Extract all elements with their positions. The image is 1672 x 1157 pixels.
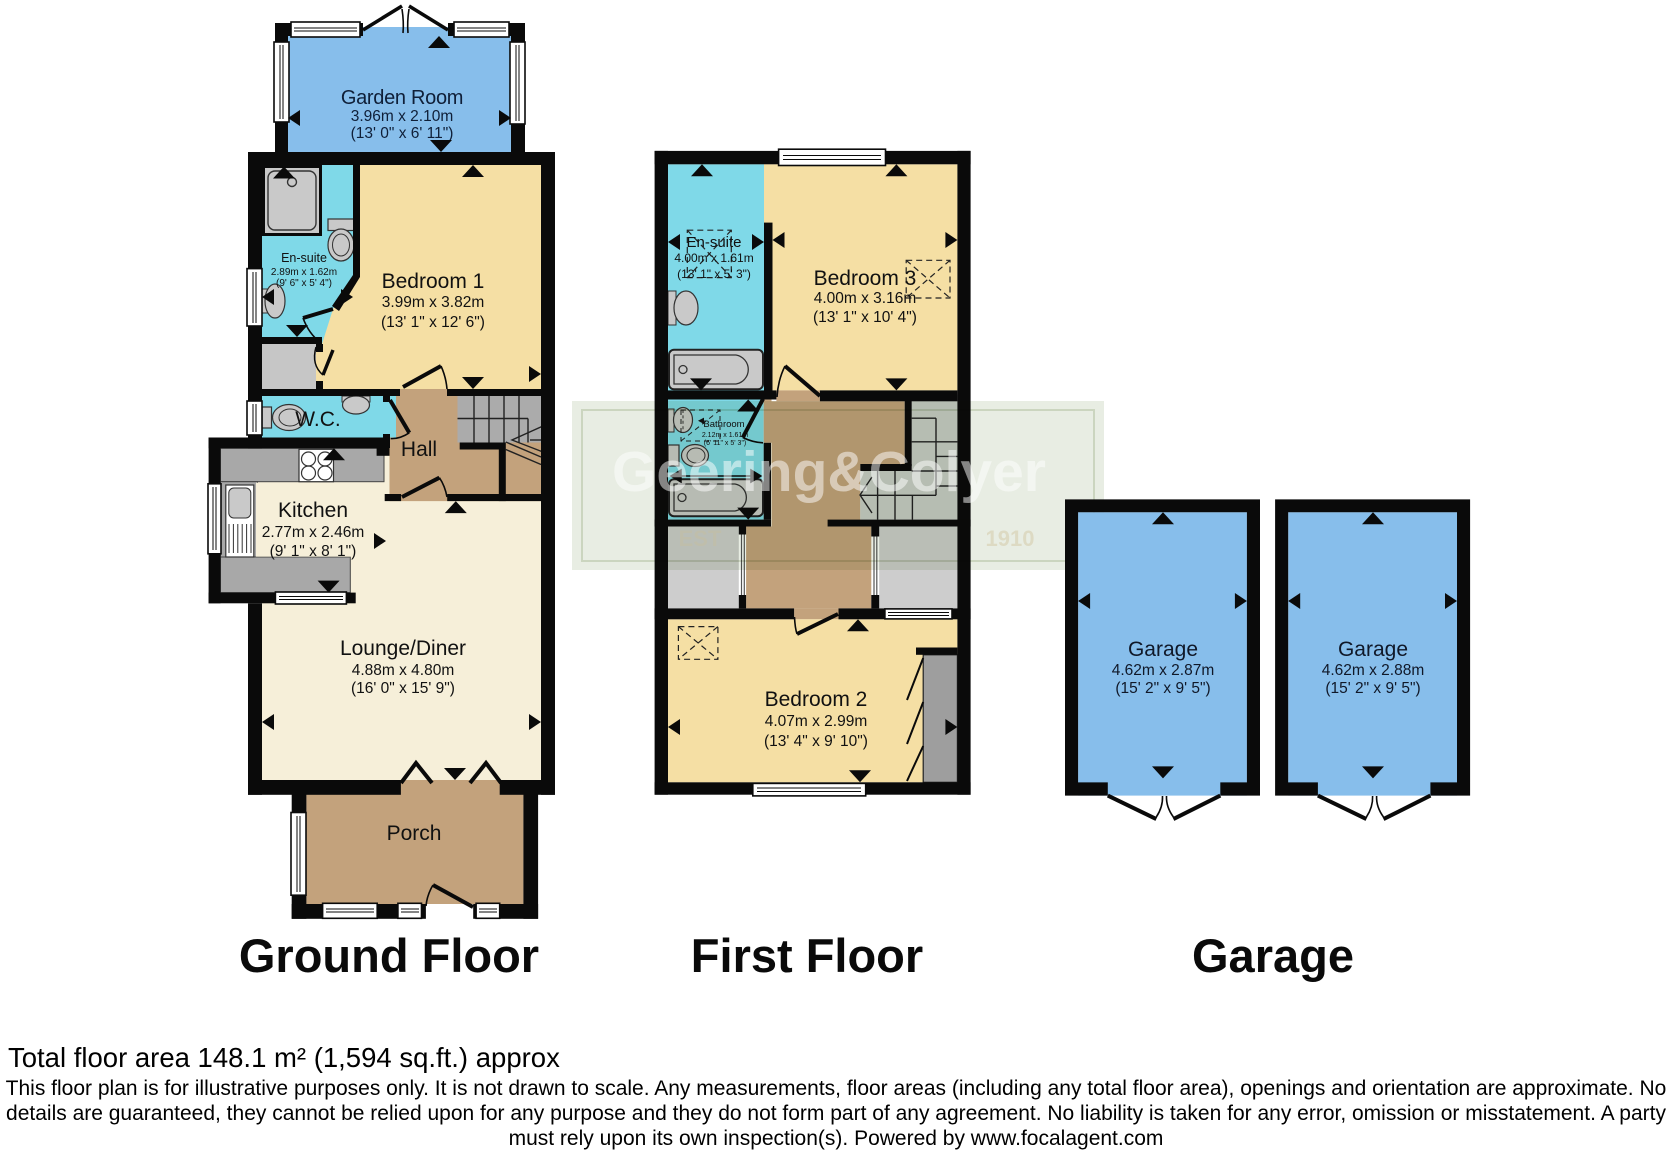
svg-text:(13' 0" x 6' 11"): (13' 0" x 6' 11")	[351, 125, 454, 142]
svg-text:4.00m x 3.16m: 4.00m x 3.16m	[814, 290, 917, 307]
svg-text:must rely upon its own inspect: must rely upon its own inspection(s). Po…	[509, 1127, 1164, 1150]
svg-text:En-suite: En-suite	[281, 251, 327, 265]
svg-text:4.07m x 2.99m: 4.07m x 2.99m	[765, 713, 868, 730]
svg-text:Bedroom 2: Bedroom 2	[765, 688, 868, 711]
svg-text:(9' 1" x 8' 1"): (9' 1" x 8' 1")	[270, 543, 357, 560]
svg-text:Total floor area 148.1 m² (1,5: Total floor area 148.1 m² (1,594 sq.ft.)…	[8, 1042, 560, 1073]
svg-text:2.89m x 1.62m: 2.89m x 1.62m	[271, 267, 337, 278]
svg-text:(16' 0" x 15' 9"): (16' 0" x 15' 9")	[351, 680, 455, 697]
svg-text:Bedroom 1: Bedroom 1	[382, 270, 485, 293]
svg-text:3.96m x 2.10m: 3.96m x 2.10m	[351, 108, 454, 125]
svg-text:(13' 1" x 5' 3"): (13' 1" x 5' 3")	[677, 267, 751, 281]
svg-text:(13' 4" x 9' 10"): (13' 4" x 9' 10")	[764, 733, 868, 750]
svg-text:Garage: Garage	[1338, 638, 1408, 661]
svg-text:(9' 6" x 5' 4"): (9' 6" x 5' 4")	[276, 278, 332, 289]
svg-text:Porch: Porch	[387, 822, 442, 845]
svg-text:Lounge/Diner: Lounge/Diner	[340, 637, 466, 660]
svg-text:(15' 2" x 9' 5"): (15' 2" x 9' 5")	[1115, 680, 1210, 697]
svg-text:details are guaranteed, they c: details are guaranteed, they cannot be r…	[6, 1102, 1666, 1125]
svg-text:This floor plan is for illustr: This floor plan is for illustrative purp…	[6, 1077, 1667, 1100]
svg-text:Garden Room: Garden Room	[341, 87, 463, 109]
svg-text:W.C.: W.C.	[295, 408, 341, 431]
svg-text:4.62m x 2.87m: 4.62m x 2.87m	[1112, 662, 1215, 679]
svg-text:EST: EST	[679, 526, 722, 551]
svg-text:Hall: Hall	[401, 438, 437, 461]
svg-text:Kitchen: Kitchen	[278, 499, 348, 522]
svg-text:Bedroom 3: Bedroom 3	[814, 267, 917, 290]
svg-text:En-suite: En-suite	[686, 234, 741, 251]
svg-text:4.62m x 2.88m: 4.62m x 2.88m	[1322, 662, 1425, 679]
svg-text:First Floor: First Floor	[691, 929, 923, 982]
svg-text:4.00m x 1.61m: 4.00m x 1.61m	[674, 251, 753, 265]
svg-text:(13' 1" x 10' 4"): (13' 1" x 10' 4")	[813, 309, 917, 326]
svg-text:Garage: Garage	[1128, 638, 1198, 661]
svg-text:Garage: Garage	[1192, 929, 1354, 982]
svg-text:Geering&Colyer: Geering&Colyer	[612, 440, 1046, 504]
svg-text:(15' 2" x 9' 5"): (15' 2" x 9' 5")	[1325, 680, 1420, 697]
svg-text:1910: 1910	[986, 526, 1035, 551]
svg-text:(13' 1" x 12' 6"): (13' 1" x 12' 6")	[381, 314, 485, 331]
svg-text:2.77m x 2.46m: 2.77m x 2.46m	[262, 524, 365, 541]
svg-text:3.99m x 3.82m: 3.99m x 3.82m	[382, 294, 485, 311]
svg-text:4.88m x 4.80m: 4.88m x 4.80m	[352, 662, 455, 679]
svg-text:Ground Floor: Ground Floor	[239, 929, 539, 982]
